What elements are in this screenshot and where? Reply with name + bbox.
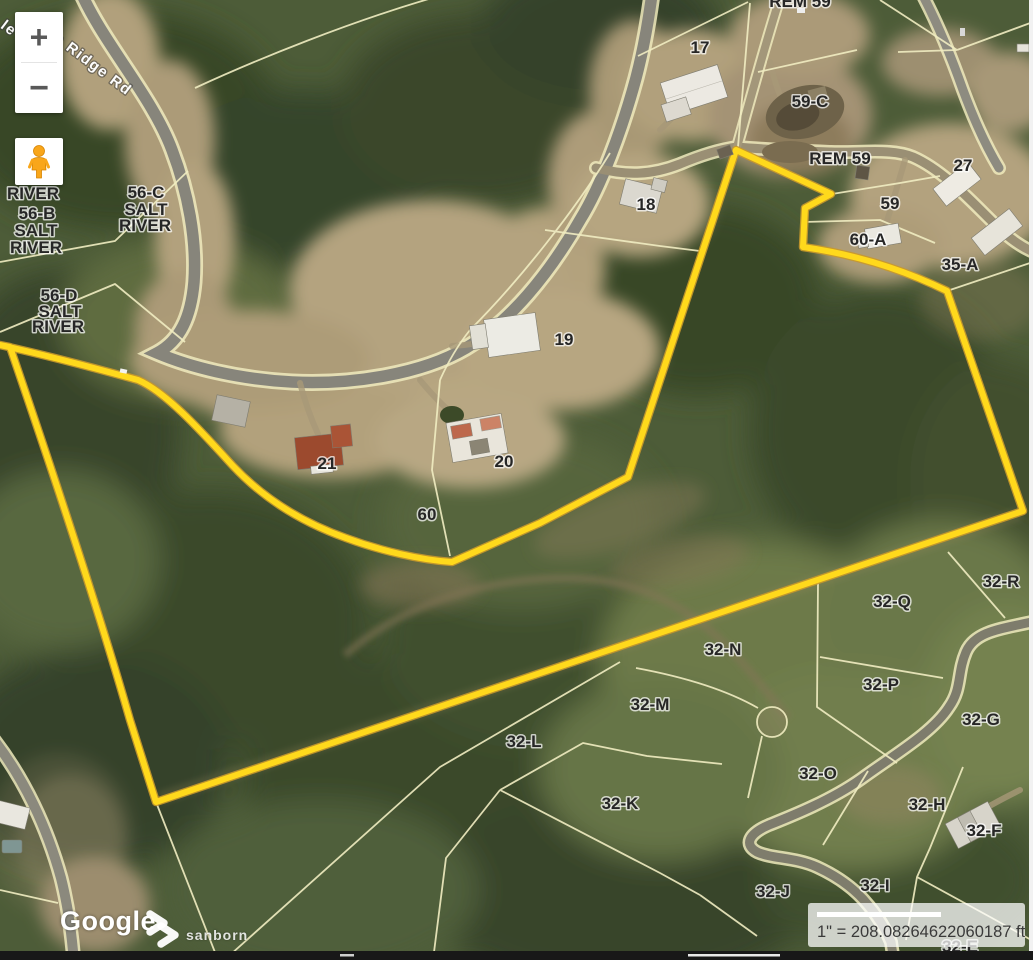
sanborn-label: sanborn (186, 927, 248, 943)
parcel-label: 20 (495, 452, 514, 471)
parcel-label: RIVER (32, 317, 84, 336)
parcel-label: 32-N (705, 640, 742, 659)
bottom-border-tick (688, 954, 780, 957)
satellite-map-canvas[interactable]: s Ridge Rd le REM 591759-CREM 59275960-A… (0, 0, 1033, 960)
map-app: s Ridge Rd le REM 591759-CREM 59275960-A… (0, 0, 1033, 960)
parcel-label: RIVER (119, 216, 171, 235)
parcel-label: 17 (691, 38, 710, 57)
parcel-label: 32-P (863, 675, 899, 694)
parcel-label: 60-A (850, 230, 887, 249)
zoom-in-button[interactable]: + (15, 12, 63, 62)
parcel-label: 35-A (942, 255, 979, 274)
scale-box: 1" = 208.08264622060187 ft (808, 903, 1025, 947)
pegman-icon (26, 144, 52, 180)
pegman-button[interactable] (15, 138, 63, 185)
parcel-label: 32-J (756, 882, 790, 901)
parcel-label: 27 (954, 156, 973, 175)
zoom-out-button[interactable]: − (15, 63, 63, 119)
parcel-label: RIVER (10, 238, 62, 257)
parcel-label: 18 (637, 195, 656, 214)
parcel-label: 32-G (962, 710, 1000, 729)
parcel-label: 32-Q (873, 592, 911, 611)
sanborn-chevrons-icon (144, 906, 184, 950)
parcel-label: 59-C (792, 92, 829, 111)
zoom-out-label: − (29, 69, 49, 108)
zoom-in-label: + (30, 19, 49, 56)
sanborn-logo: sanborn (144, 906, 248, 950)
parcel-label: 32-I (860, 876, 889, 895)
zoom-control: + − (15, 12, 63, 113)
parcel-label: 32-K (602, 794, 640, 813)
parcel-label: 32-O (799, 764, 837, 783)
cul-de-sac (757, 707, 787, 737)
parcel-label: 32-F (967, 821, 1002, 840)
parcel-label: RIVER (7, 184, 59, 203)
parcel-label: REM 59 (809, 149, 870, 168)
parcel-label: 32-R (983, 572, 1020, 591)
parcel-label: REM 59 (769, 0, 830, 11)
parcel-label: 21 (318, 454, 337, 473)
bottom-border-tick (340, 954, 354, 957)
parcel-label: 59 (881, 194, 900, 213)
building-top-right (1017, 44, 1029, 52)
parcel-label: 60 (418, 505, 437, 524)
right-border (1029, 0, 1033, 960)
scale-text: 1" = 208.08264622060187 ft (817, 923, 1022, 942)
pool (2, 840, 22, 853)
parcel-label: 32-H (909, 795, 946, 814)
parcel-label: 32-L (507, 732, 542, 751)
parcel-label: 19 (555, 330, 574, 349)
bottom-border (0, 951, 1033, 960)
scale-bar (817, 912, 941, 917)
parcel-label: 32-M (631, 695, 670, 714)
google-logo[interactable]: Google (60, 906, 156, 937)
